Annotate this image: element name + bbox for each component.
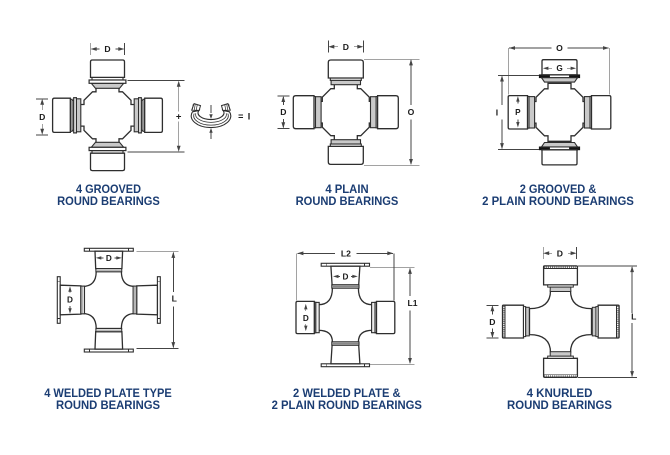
- svg-text:ROUND BEARINGS: ROUND BEARINGS: [296, 194, 399, 208]
- svg-text:O: O: [556, 43, 563, 53]
- svg-text:I: I: [248, 111, 251, 121]
- svg-text:G: G: [556, 64, 562, 73]
- svg-text:O: O: [408, 107, 415, 117]
- svg-text:L: L: [631, 312, 636, 322]
- svg-text:2 PLAIN ROUND BEARINGS: 2 PLAIN ROUND BEARINGS: [272, 398, 422, 412]
- svg-text:ROUND BEARINGS: ROUND BEARINGS: [507, 398, 612, 412]
- svg-text:D: D: [342, 272, 348, 281]
- svg-text:D: D: [280, 107, 286, 117]
- svg-text:L1: L1: [407, 298, 417, 308]
- svg-text:D: D: [67, 296, 73, 305]
- svg-text:L: L: [172, 294, 177, 304]
- svg-text:D: D: [557, 248, 563, 258]
- svg-text:D: D: [106, 254, 112, 263]
- svg-text:2 PLAIN ROUND BEARINGS: 2 PLAIN ROUND BEARINGS: [482, 194, 634, 208]
- svg-text:ROUND BEARINGS: ROUND BEARINGS: [56, 398, 160, 412]
- svg-text:D: D: [104, 44, 110, 54]
- svg-text:ROUND BEARINGS: ROUND BEARINGS: [57, 194, 160, 208]
- svg-text:I: I: [496, 107, 498, 117]
- svg-text:L2: L2: [341, 248, 351, 258]
- svg-text:D: D: [489, 317, 495, 327]
- svg-text:D: D: [303, 314, 309, 323]
- svg-text:D: D: [39, 112, 45, 122]
- svg-text:P: P: [515, 108, 521, 117]
- svg-text:D: D: [343, 42, 349, 52]
- svg-text:+: +: [176, 111, 182, 122]
- svg-text:=: =: [238, 111, 243, 121]
